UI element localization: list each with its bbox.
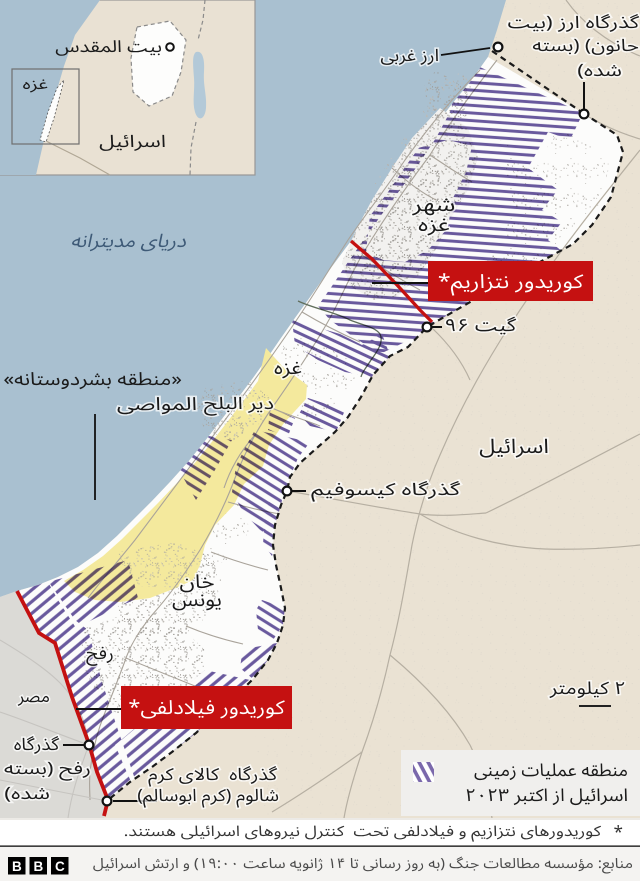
svg-text:B: B	[34, 859, 44, 874]
svg-text:C: C	[55, 859, 65, 874]
svg-text:B: B	[12, 859, 22, 874]
